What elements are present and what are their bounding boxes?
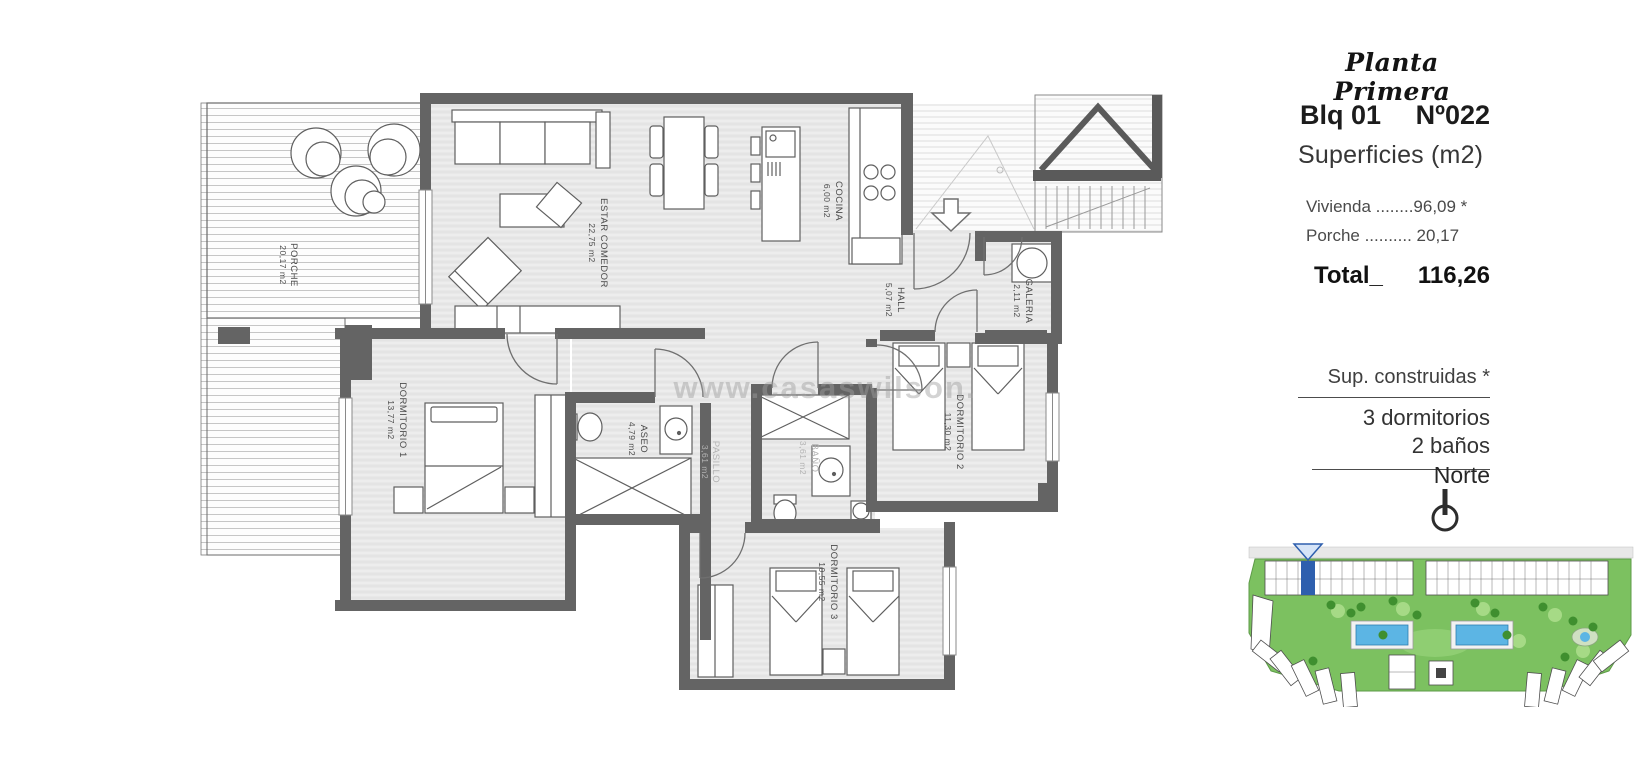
window bbox=[943, 567, 956, 655]
site-plan-map bbox=[1243, 543, 1638, 707]
north-arrow-icon bbox=[1428, 487, 1462, 533]
total-label: Total_ bbox=[1314, 262, 1383, 290]
sofa bbox=[452, 110, 610, 168]
watermark: www.casaswilson. bbox=[672, 370, 976, 405]
building-row-north bbox=[1265, 561, 1608, 595]
room-label-bano: BAÑO bbox=[809, 444, 820, 473]
room-label-pasillo: PASILLO bbox=[710, 441, 721, 483]
room-label-dormitorio-1: DORMITORIO 1 bbox=[397, 382, 408, 458]
built-surface-note: Sup. construidas * bbox=[1298, 366, 1490, 398]
stairwell bbox=[1033, 95, 1162, 232]
room-area-bano: 3,61 m2 bbox=[798, 441, 808, 475]
room-area-porche: 20,17 m2 bbox=[278, 245, 288, 284]
window bbox=[339, 398, 352, 515]
room-label-porche: PORCHE bbox=[288, 243, 299, 287]
feature-bathrooms: 2 baños bbox=[1312, 432, 1490, 460]
room-area-estar-comedor: 22,75 m2 bbox=[587, 223, 597, 262]
window bbox=[419, 190, 432, 304]
room-area-aseo: 4,79 m2 bbox=[627, 422, 637, 456]
window bbox=[1046, 393, 1059, 461]
surface-row-vivienda: Vivienda ........96,09 * bbox=[1306, 192, 1490, 221]
room-label-dormitorio-2: DORMITORIO 2 bbox=[954, 394, 965, 470]
room-label-aseo: ASEO bbox=[638, 425, 649, 453]
room-area-hall: 5,07 m2 bbox=[884, 283, 894, 317]
floor-plan-page: PORCHE 20,17 m2 ESTAR COMEDOR 22,75 m2 C… bbox=[0, 0, 1638, 773]
plan-title: Planta Primera bbox=[1292, 48, 1492, 106]
unit-number: Nº022 bbox=[1416, 100, 1490, 131]
features: 3 dormitorios 2 baños bbox=[1312, 404, 1490, 470]
room-area-dormitorio-3: 10,55 m2 bbox=[817, 562, 827, 601]
block-unit-row: Blq 01 Nº022 bbox=[1300, 100, 1490, 131]
surfaces-heading: Superficies (m2) bbox=[1298, 141, 1483, 170]
room-label-dormitorio-3: DORMITORIO 3 bbox=[828, 544, 839, 620]
feature-bedrooms: 3 dormitorios bbox=[1312, 404, 1490, 432]
surface-rows: Vivienda ........96,09 * Porche ........… bbox=[1306, 192, 1490, 250]
room-area-dormitorio-1: 13,77 m2 bbox=[386, 400, 396, 439]
room-area-dormitorio-2: 11,30 m2 bbox=[943, 413, 953, 452]
highlighted-unit bbox=[1301, 561, 1315, 595]
block-label: Blq 01 bbox=[1300, 100, 1381, 131]
floor-plan: PORCHE 20,17 m2 ESTAR COMEDOR 22,75 m2 C… bbox=[0, 0, 1240, 773]
room-label-galeria: GALERIA bbox=[1023, 279, 1034, 324]
total-row: Total_ 116,26 bbox=[1314, 262, 1490, 290]
room-label-estar-comedor: ESTAR COMEDOR bbox=[598, 198, 609, 288]
room-area-pasillo: 3,61 m2 bbox=[700, 445, 710, 479]
north-label: Norte bbox=[1434, 462, 1490, 489]
kitchen-counter bbox=[840, 95, 902, 264]
surface-row-porche: Porche .......... 20,17 bbox=[1306, 221, 1490, 250]
room-label-cocina: COCINA bbox=[833, 181, 844, 221]
galeria-boiler bbox=[1012, 244, 1052, 282]
room-label-hall: HALL bbox=[895, 287, 906, 313]
room-area-galeria: 2,11 m2 bbox=[1012, 284, 1022, 318]
room-area-cocina: 6,00 m2 bbox=[822, 184, 832, 218]
wardrobe bbox=[535, 395, 568, 517]
total-value: 116,26 bbox=[1418, 262, 1490, 290]
porch-side-table bbox=[363, 191, 385, 213]
